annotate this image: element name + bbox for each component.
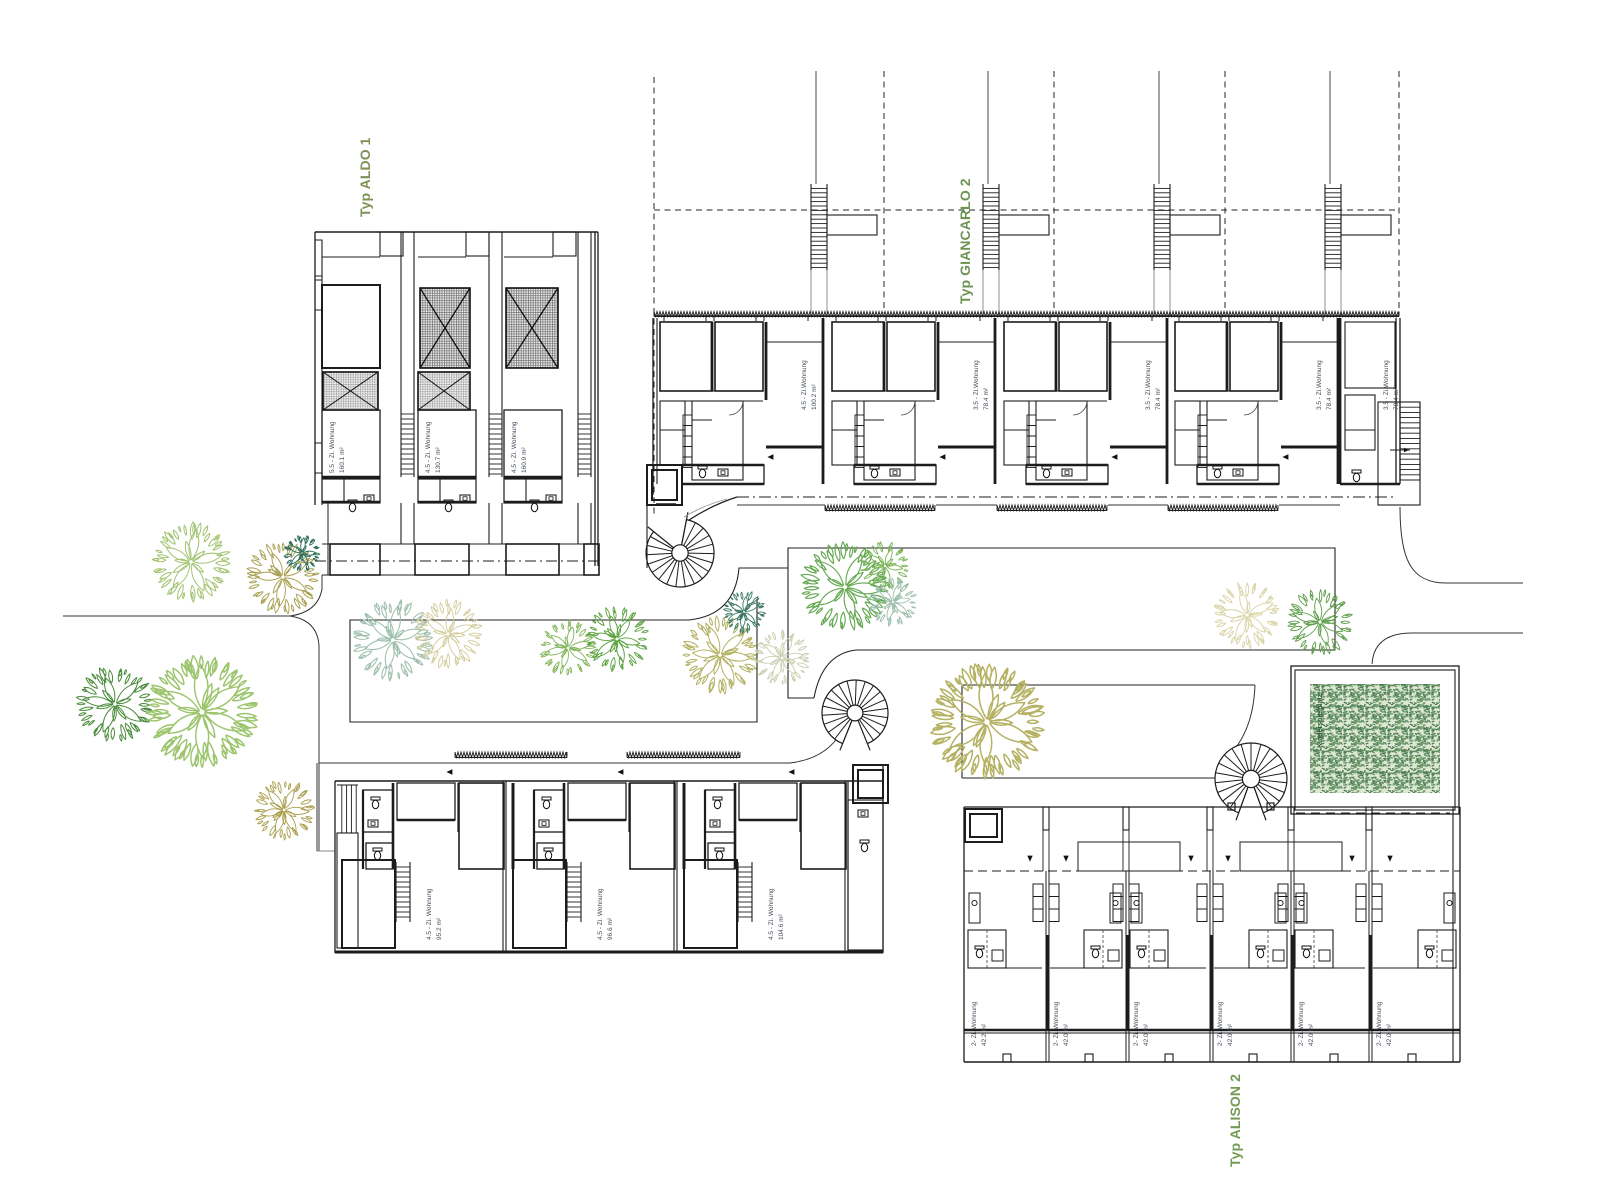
svg-text:Kinderspielplatz: Kinderspielplatz [1317, 693, 1324, 748]
svg-text:42.0 m²: 42.0 m² [1143, 1023, 1150, 1046]
svg-text:Typ GIANCARLO 2: Typ GIANCARLO 2 [957, 178, 973, 304]
svg-text:160.1 m²: 160.1 m² [339, 447, 346, 473]
svg-text:Typ ALDO 1: Typ ALDO 1 [357, 137, 373, 217]
svg-text:2- Zi. Wohnung: 2- Zi. Wohnung [1217, 1001, 1224, 1046]
svg-text:2- Zi. Wohnung: 2- Zi. Wohnung [1053, 1001, 1060, 1046]
svg-text:104.6 m²: 104.6 m² [778, 914, 785, 940]
svg-text:78.4 m²: 78.4 m² [1326, 387, 1333, 410]
svg-text:78.4 m²: 78.4 m² [1155, 387, 1162, 410]
svg-text:4.5 - Zi. Wohnung: 4.5 - Zi. Wohnung [511, 421, 518, 473]
svg-text:42.0 m²: 42.0 m² [1386, 1023, 1393, 1046]
svg-text:Typ ALISON 2: Typ ALISON 2 [1227, 1074, 1243, 1167]
svg-text:4.5 - Zi. Wohnung: 4.5 - Zi. Wohnung [426, 888, 433, 940]
svg-text:4.5 - Zi. Wohnung: 4.5 - Zi. Wohnung [768, 888, 775, 940]
svg-text:42.0 m²: 42.0 m² [1308, 1023, 1315, 1046]
svg-text:42.0 m²: 42.0 m² [1227, 1023, 1234, 1046]
svg-text:4.5 - Zi. Wohnung: 4.5 - Zi. Wohnung [425, 421, 432, 473]
svg-text:78.4 m²: 78.4 m² [1393, 387, 1400, 410]
svg-text:160.9 m²: 160.9 m² [521, 447, 528, 473]
svg-text:3.5 - Zi.Wohnung: 3.5 - Zi.Wohnung [973, 360, 980, 410]
svg-text:78.4 m²: 78.4 m² [983, 387, 990, 410]
svg-text:5.5 - Zi. Wohnung: 5.5 - Zi. Wohnung [329, 421, 336, 473]
svg-text:4.5 - Zi. Wohnung: 4.5 - Zi. Wohnung [597, 888, 604, 940]
svg-text:3.5 - Zi.Wohnung: 3.5 - Zi.Wohnung [1145, 360, 1152, 410]
svg-text:130.7 m²: 130.7 m² [435, 447, 442, 473]
svg-text:2- Zi. Wohnung: 2- Zi. Wohnung [1133, 1001, 1140, 1046]
svg-text:2- Zi. Wohnung: 2- Zi. Wohnung [971, 1001, 978, 1046]
svg-text:42.0 m²: 42.0 m² [1063, 1023, 1070, 1046]
svg-text:42.2 m²: 42.2 m² [981, 1023, 988, 1046]
svg-text:3.5 - Zi.Wohnung: 3.5 - Zi.Wohnung [1316, 360, 1323, 410]
svg-text:2- Zi. Wohnung: 2- Zi. Wohnung [1298, 1001, 1305, 1046]
svg-text:2- Zi. Wohnung: 2- Zi. Wohnung [1376, 1001, 1383, 1046]
svg-text:4.5 - Zi.Wohnung: 4.5 - Zi.Wohnung [801, 360, 808, 410]
svg-text:100.2 m²: 100.2 m² [811, 384, 818, 410]
svg-text:95.2 m²: 95.2 m² [436, 917, 443, 940]
svg-text:96.6 m²: 96.6 m² [607, 917, 614, 940]
